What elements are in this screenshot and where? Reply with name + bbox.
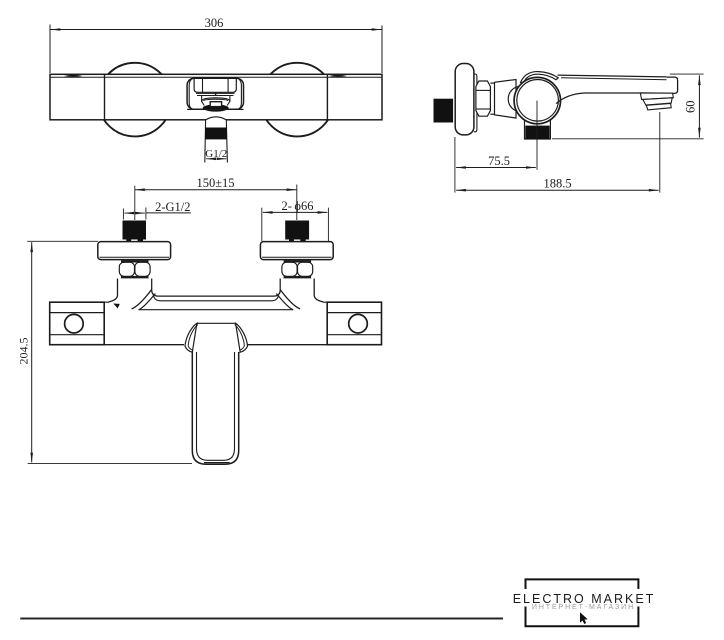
svg-text:204.5: 204.5 xyxy=(17,338,31,365)
svg-text:ИНТЕРНЕТ-МАГАЗИН: ИНТЕРНЕТ-МАГАЗИН xyxy=(532,604,635,611)
svg-text:306: 306 xyxy=(205,16,224,30)
svg-text:G1/2: G1/2 xyxy=(205,148,227,160)
svg-text:2- ϕ66: 2- ϕ66 xyxy=(282,199,314,213)
svg-text:60: 60 xyxy=(684,100,698,113)
svg-text:2-G1/2: 2-G1/2 xyxy=(155,200,190,214)
svg-text:150±15: 150±15 xyxy=(196,176,234,190)
svg-text:188.5: 188.5 xyxy=(543,177,571,191)
svg-text:75.5: 75.5 xyxy=(488,154,510,168)
